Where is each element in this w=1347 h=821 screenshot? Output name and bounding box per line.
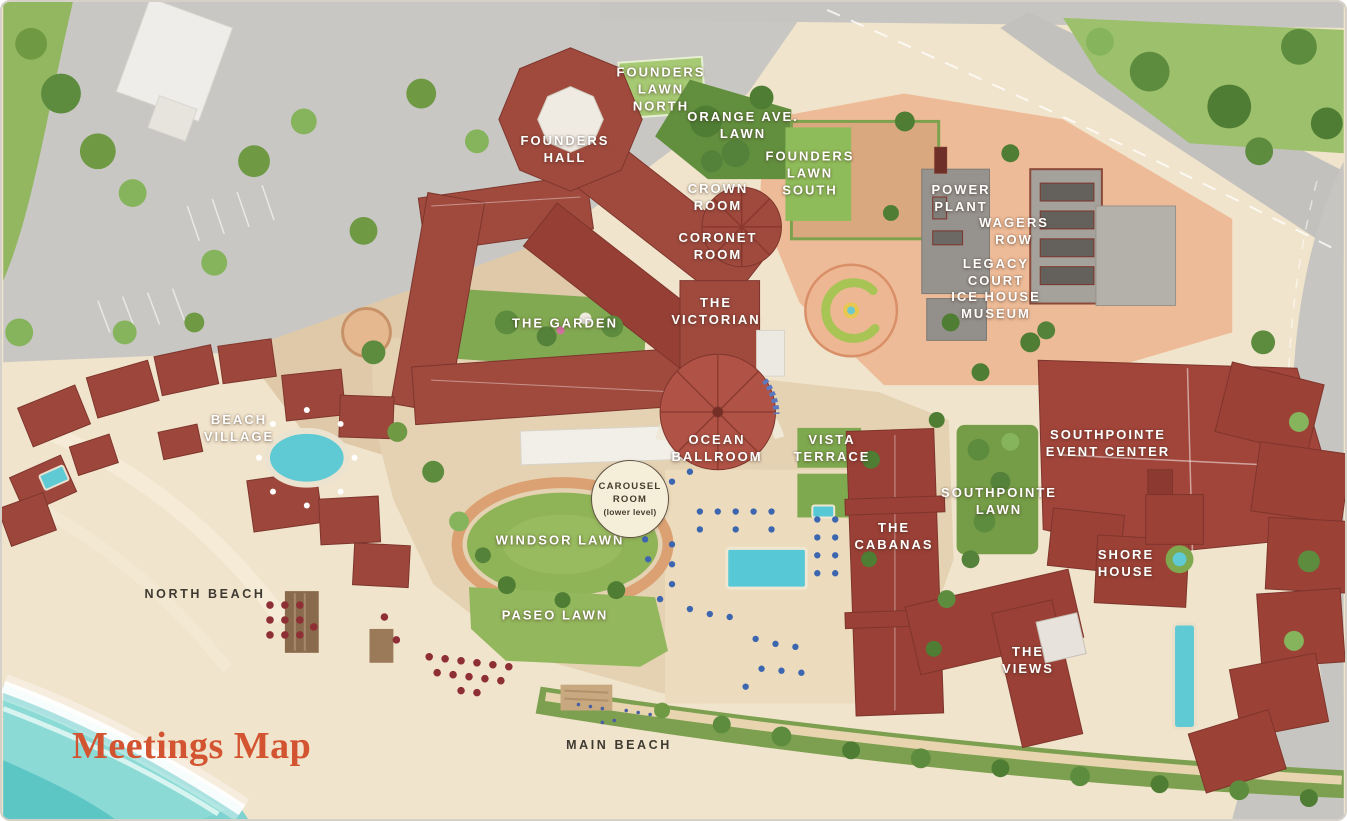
pool-umbrella-icon xyxy=(814,570,820,576)
beach-umbrella-icon xyxy=(310,623,318,631)
tree-icon xyxy=(1229,780,1249,800)
pool-umbrella-icon xyxy=(669,581,675,587)
tree-icon xyxy=(1020,332,1040,352)
beach-umbrella-icon xyxy=(497,677,505,685)
beach-towel-icon xyxy=(601,707,605,711)
pool-umbrella-icon xyxy=(768,508,774,514)
pool-umbrella-icon xyxy=(814,516,820,522)
pool-umbrella-icon xyxy=(832,552,838,558)
beach-towel-icon xyxy=(589,705,593,709)
tree-icon xyxy=(5,318,33,346)
beach-umbrella-icon xyxy=(296,601,304,609)
tree-icon xyxy=(883,205,899,221)
beach-umbrella-icon xyxy=(266,601,274,609)
founders-lawn-south-area xyxy=(785,127,851,221)
tree-icon xyxy=(722,139,750,167)
tree-icon xyxy=(119,179,147,207)
tree-icon xyxy=(842,741,860,759)
pool-umbrella-icon xyxy=(832,516,838,522)
pool-umbrella-icon xyxy=(772,641,778,647)
tree-icon xyxy=(184,312,204,332)
tree-icon xyxy=(422,461,444,483)
pool-umbrella-icon xyxy=(715,508,721,514)
pool-umbrella-icon xyxy=(768,526,774,532)
tree-icon xyxy=(750,86,774,110)
cabana-icon xyxy=(256,455,262,461)
beach-umbrella-icon xyxy=(465,673,473,681)
cabana-icon xyxy=(338,489,344,495)
tree-icon xyxy=(607,581,625,599)
pool-umbrella-icon xyxy=(669,561,675,567)
tree-icon xyxy=(495,310,519,334)
pool-umbrella-icon xyxy=(814,534,820,540)
tree-icon xyxy=(972,363,990,381)
tree-icon xyxy=(929,412,945,428)
tree-icon xyxy=(1001,144,1019,162)
beach-umbrella-icon xyxy=(473,659,481,667)
tree-icon xyxy=(1037,321,1055,339)
tree-icon xyxy=(895,111,915,131)
beach-umbrella-icon xyxy=(393,636,401,644)
tree-icon xyxy=(1151,775,1169,793)
pool-umbrella-icon xyxy=(752,636,758,642)
tree-icon xyxy=(113,320,137,344)
tree-icon xyxy=(911,748,931,768)
tree-icon xyxy=(1130,52,1170,92)
pool-umbrella-icon xyxy=(697,508,703,514)
tree-icon xyxy=(350,217,378,245)
tree-icon xyxy=(41,74,81,114)
tree-icon xyxy=(1300,789,1318,807)
beach-towel-icon xyxy=(624,709,628,713)
pool-umbrella-icon xyxy=(733,508,739,514)
beach-umbrella-icon xyxy=(281,601,289,609)
beach-village-pool xyxy=(267,431,347,485)
beach-umbrella-icon xyxy=(381,613,389,621)
pool-umbrella-icon xyxy=(792,644,798,650)
beach-umbrella-icon xyxy=(473,689,481,697)
tree-icon xyxy=(654,703,670,719)
tree-icon xyxy=(537,326,557,346)
tree-icon xyxy=(498,576,516,594)
beach-umbrella-icon xyxy=(481,675,489,683)
pool-umbrella-icon xyxy=(832,534,838,540)
pool-umbrella-icon xyxy=(832,570,838,576)
tree-icon xyxy=(962,550,980,568)
tree-icon xyxy=(690,105,722,137)
tree-icon xyxy=(475,547,491,563)
tree-icon xyxy=(15,28,47,60)
tree-icon xyxy=(1251,330,1275,354)
beach-towel-icon xyxy=(612,719,616,723)
tree-icon xyxy=(406,79,436,109)
tree-icon xyxy=(601,315,623,337)
beach-umbrella-icon xyxy=(281,616,289,624)
beach-towel-icon xyxy=(577,703,581,707)
tree-icon xyxy=(1001,433,1019,451)
beach-stairs xyxy=(561,685,613,711)
power-plant-building xyxy=(922,147,990,293)
tree-icon xyxy=(862,451,880,469)
beach-umbrella-icon xyxy=(489,661,497,669)
map-artwork xyxy=(2,2,1345,819)
beach-umbrella-icon xyxy=(505,663,513,671)
pool-umbrella-icon xyxy=(750,508,756,514)
plaza-roundabout xyxy=(805,265,897,357)
lap-pool xyxy=(1174,624,1196,728)
cabana-icon xyxy=(304,407,310,413)
beach-deck-small xyxy=(369,629,393,663)
main-pool xyxy=(727,548,807,588)
pool-umbrella-icon xyxy=(758,666,764,672)
pool-umbrella-icon xyxy=(798,670,804,676)
pool-umbrella-icon xyxy=(642,536,648,542)
beach-umbrella-icon xyxy=(296,616,304,624)
pool-umbrella-icon xyxy=(727,614,733,620)
beach-umbrella-icon xyxy=(457,687,465,695)
gray-building-east xyxy=(1096,206,1176,306)
tree-icon xyxy=(701,150,723,172)
pool-umbrella-icon xyxy=(778,668,784,674)
carousel-room-label: CAROUSEL ROOM xyxy=(599,481,662,507)
tree-icon xyxy=(362,340,386,364)
tree-icon xyxy=(291,108,317,134)
tree-icon xyxy=(772,726,792,746)
beach-umbrella-icon xyxy=(296,631,304,639)
carousel-room-badge: CAROUSEL ROOM (lower level) xyxy=(591,460,669,538)
beach-towel-icon xyxy=(636,711,640,715)
tree-icon xyxy=(968,439,990,461)
wagers-row-building xyxy=(1030,169,1102,303)
pool-umbrella-icon xyxy=(669,541,675,547)
tree-icon xyxy=(201,250,227,276)
tree-icon xyxy=(1086,28,1114,56)
cabana-icon xyxy=(352,455,358,461)
beach-towel-icon xyxy=(601,721,605,725)
tree-icon xyxy=(713,716,731,734)
tree-icon xyxy=(1245,137,1273,165)
cabana-icon xyxy=(338,421,344,427)
tree-icon xyxy=(974,511,996,533)
tree-icon xyxy=(991,759,1009,777)
pool-umbrella-icon xyxy=(742,683,748,689)
tree-icon xyxy=(555,592,571,608)
beach-umbrella-icon xyxy=(441,655,449,663)
pool-umbrella-icon xyxy=(687,606,693,612)
tree-icon xyxy=(938,590,956,608)
pool-umbrella-icon xyxy=(669,478,675,484)
tree-icon xyxy=(449,512,469,532)
tree-icon xyxy=(1284,631,1304,651)
pool-umbrella-icon xyxy=(657,596,663,602)
tree-icon xyxy=(926,641,942,657)
pool-umbrella-icon xyxy=(645,556,651,562)
tree-icon xyxy=(387,422,407,442)
cabana-icon xyxy=(270,421,276,427)
tree-icon xyxy=(1289,412,1309,432)
pool-umbrella-icon xyxy=(733,526,739,532)
meetings-map: FOUNDERS LAWN NORTH ORANGE AVE. LAWN FOU… xyxy=(0,0,1347,821)
pool-umbrella-icon xyxy=(707,611,713,617)
tree-icon xyxy=(990,472,1010,492)
carousel-room-level: (lower level) xyxy=(603,507,656,517)
cabana-icon xyxy=(270,489,276,495)
tree-icon xyxy=(1311,107,1343,139)
beach-umbrella-icon xyxy=(266,631,274,639)
beach-umbrella-icon xyxy=(449,671,457,679)
page-title: Meetings Map xyxy=(72,724,311,768)
spa-pool xyxy=(812,506,834,518)
pool-umbrella-icon xyxy=(814,552,820,558)
tree-icon xyxy=(1070,766,1090,786)
cabana-icon xyxy=(304,503,310,509)
tree-icon xyxy=(1207,85,1251,129)
beach-umbrella-icon xyxy=(457,657,465,665)
tree-icon xyxy=(80,133,116,169)
tree-icon xyxy=(861,551,877,567)
beach-umbrella-icon xyxy=(433,669,441,677)
beach-umbrella-icon xyxy=(281,631,289,639)
tree-icon xyxy=(465,129,489,153)
tree-icon xyxy=(942,313,960,331)
beach-towel-icon xyxy=(648,713,652,717)
beach-umbrella-icon xyxy=(425,653,433,661)
tree-icon xyxy=(1298,550,1320,572)
tree-icon xyxy=(238,145,270,177)
tree-icon xyxy=(1281,29,1317,65)
pool-umbrella-icon xyxy=(687,469,693,475)
pool-umbrella-icon xyxy=(697,526,703,532)
beach-umbrella-icon xyxy=(266,616,274,624)
